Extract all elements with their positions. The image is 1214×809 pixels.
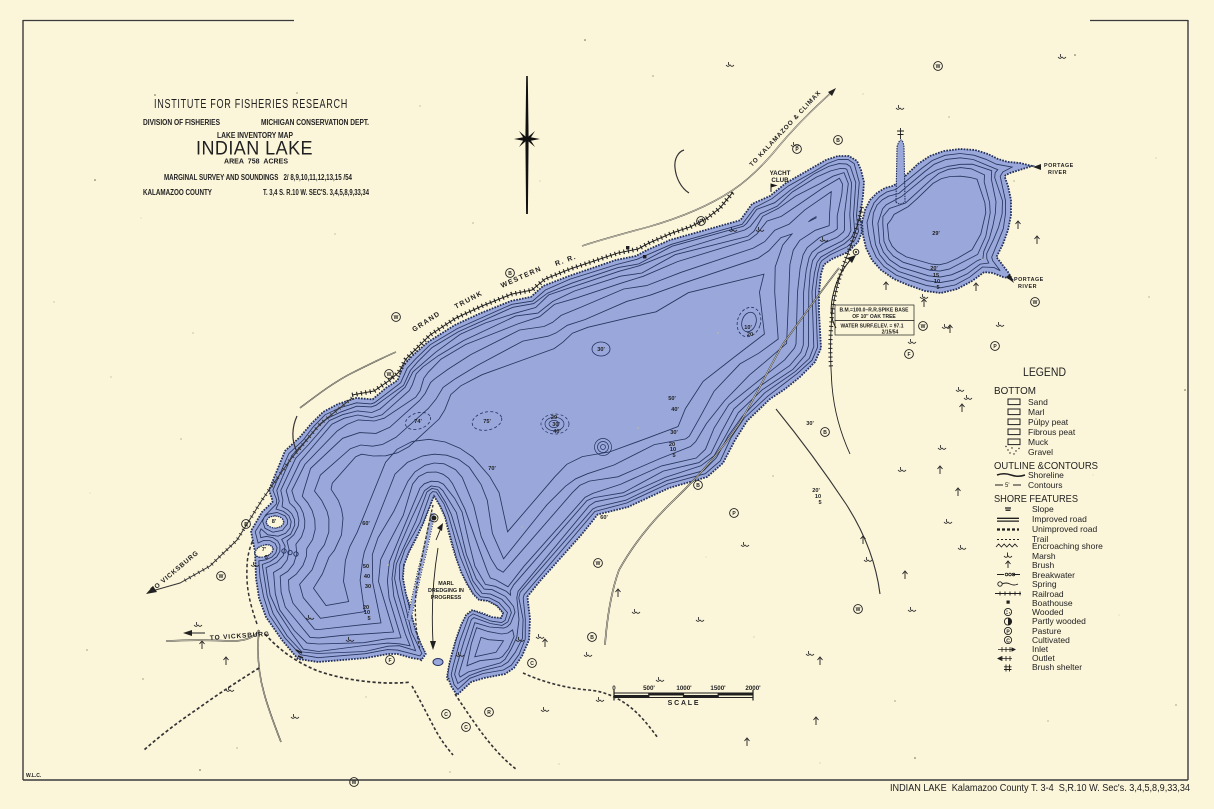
svg-text:Partly wooded: Partly wooded (1032, 616, 1086, 626)
svg-text:KALAMAZOO COUNTY: KALAMAZOO COUNTY (143, 188, 213, 197)
svg-text:8': 8' (272, 519, 277, 525)
svg-text:Shoreline: Shoreline (1028, 470, 1064, 480)
svg-text:DIVISION OF FISHERIES: DIVISION OF FISHERIES (143, 118, 221, 127)
svg-text:SCALE: SCALE (668, 700, 701, 707)
svg-text:C: C (1006, 638, 1010, 644)
svg-text:TO KALAMAZOO & CLIMAX: TO KALAMAZOO & CLIMAX (748, 89, 822, 168)
svg-text:W: W (352, 780, 357, 786)
svg-text:5: 5 (367, 616, 370, 622)
svg-text:Spring: Spring (1032, 579, 1057, 589)
svg-text:PORTAGE: PORTAGE (1014, 277, 1044, 283)
svg-text:CLUB: CLUB (771, 177, 789, 184)
svg-text:TRUNK: TRUNK (454, 290, 485, 311)
svg-text:5: 5 (936, 285, 939, 291)
svg-text:W: W (936, 64, 941, 70)
svg-text:W.L.C.: W.L.C. (26, 773, 42, 779)
svg-text:W: W (387, 372, 392, 378)
svg-text:50': 50' (668, 396, 676, 402)
svg-text:0: 0 (612, 685, 616, 692)
svg-text:Fibrous peat: Fibrous peat (1028, 427, 1076, 437)
svg-text:20: 20 (747, 332, 753, 338)
svg-text:AREA 758 ACRES: AREA 758 ACRES (224, 159, 288, 166)
svg-text:Brush: Brush (1032, 560, 1054, 570)
svg-text:40: 40 (364, 574, 370, 580)
svg-text:B: B (836, 138, 840, 144)
svg-text:Unimproved road: Unimproved road (1032, 524, 1097, 534)
svg-text:RIVER: RIVER (1048, 170, 1067, 176)
svg-text:60': 60' (362, 521, 370, 527)
svg-text:W: W (394, 315, 399, 321)
svg-text:7': 7' (262, 547, 267, 553)
svg-text:C: C (530, 661, 534, 667)
svg-text:BOTTOM: BOTTOM (994, 385, 1036, 397)
svg-text:T. 3,4 S. R.10 W. SEC'S. 3,4,5: T. 3,4 S. R.10 W. SEC'S. 3,4,5,8,9,33,34 (263, 188, 369, 197)
svg-text:29: 29 (551, 415, 557, 421)
svg-text:30': 30' (552, 422, 560, 428)
svg-text:W: W (856, 607, 861, 613)
svg-text:P: P (993, 344, 997, 350)
svg-text:Improved road: Improved road (1032, 514, 1087, 524)
svg-text:75': 75' (483, 419, 491, 425)
svg-text:B.M.=100.0–R.R.SPIKE BASE: B.M.=100.0–R.R.SPIKE BASE (839, 308, 909, 314)
svg-text:Muck: Muck (1028, 437, 1049, 447)
svg-text:Encroaching shore: Encroaching shore (1032, 541, 1103, 551)
svg-text:F: F (388, 658, 391, 664)
svg-text:INDIAN LAKE Kalamazoo County: INDIAN LAKE Kalamazoo County T. 3-4 S,R.… (890, 783, 1190, 794)
svg-text:MARGINAL SURVEY AND SOUNDINGS: MARGINAL SURVEY AND SOUNDINGS 2/ 8,9,10,… (164, 173, 352, 182)
svg-text:MARL: MARL (438, 581, 454, 587)
svg-text:Gravel: Gravel (1028, 447, 1053, 457)
svg-text:20': 20' (930, 266, 938, 272)
svg-text:Contours: Contours (1028, 480, 1063, 490)
svg-text:30': 30' (806, 421, 814, 427)
svg-text:B: B (244, 522, 248, 528)
svg-text:60': 60' (600, 515, 608, 521)
svg-text:OF 10″ OAK TREE: OF 10″ OAK TREE (852, 314, 896, 320)
svg-text:F: F (907, 352, 910, 358)
svg-text:1500': 1500' (710, 685, 726, 692)
svg-text:Slope: Slope (1032, 504, 1054, 514)
svg-text:Brush shelter: Brush shelter (1032, 662, 1082, 672)
svg-text:YACHT: YACHT (770, 170, 791, 177)
svg-text:5': 5' (1005, 483, 1009, 489)
svg-text:50: 50 (363, 564, 369, 570)
svg-text:W: W (596, 561, 601, 567)
svg-text:PROGRESS: PROGRESS (431, 595, 462, 601)
svg-text:PORTAGE: PORTAGE (1044, 163, 1074, 169)
svg-text:W: W (921, 324, 926, 330)
svg-text:5: 5 (818, 500, 821, 506)
svg-text:INDIAN LAKE: INDIAN LAKE (196, 138, 313, 160)
svg-text:5: 5 (672, 453, 675, 459)
svg-text:1000': 1000' (676, 685, 692, 692)
svg-text:30': 30' (670, 430, 678, 436)
svg-text:P: P (795, 147, 799, 153)
svg-text:40': 40' (553, 429, 561, 435)
svg-text:R: R (487, 710, 491, 716)
svg-text:W: W (1033, 300, 1038, 306)
svg-text:B: B (823, 430, 827, 436)
svg-text:C: C (444, 712, 448, 718)
svg-text:P: P (732, 511, 736, 517)
svg-text:Pulpy peat: Pulpy peat (1028, 417, 1069, 427)
svg-text:Sand: Sand (1028, 397, 1048, 407)
svg-text:RIVER: RIVER (1018, 284, 1037, 290)
svg-text:2000': 2000' (745, 685, 761, 692)
svg-text:W: W (219, 574, 224, 580)
svg-text:70': 70' (488, 466, 496, 472)
svg-text:C: C (464, 725, 468, 731)
svg-text:MICHIGAN CONSERVATION DEPT.: MICHIGAN CONSERVATION DEPT. (261, 118, 369, 127)
svg-text:29': 29' (932, 231, 940, 237)
svg-text:B: B (508, 271, 512, 277)
svg-text:74': 74' (414, 419, 422, 425)
svg-text:LEGEND: LEGEND (1023, 367, 1066, 379)
svg-text:5': 5' (265, 555, 270, 561)
svg-text:B: B (590, 635, 594, 641)
svg-text:40': 40' (671, 407, 679, 413)
svg-text:INSTITUTE FOR FISHERIES RESEAR: INSTITUTE FOR FISHERIES RESEARCH (154, 96, 348, 111)
svg-text:TO VICKSBURG: TO VICKSBURG (150, 550, 200, 594)
svg-text:30: 30 (365, 584, 371, 590)
svg-text:30': 30' (597, 347, 605, 353)
svg-text:B: B (696, 483, 700, 489)
svg-text:2/15/54: 2/15/54 (882, 330, 899, 336)
svg-text:500': 500' (643, 685, 655, 692)
svg-text:R. R.: R. R. (554, 254, 577, 268)
svg-text:Marl: Marl (1028, 407, 1045, 417)
svg-text:10': 10' (744, 325, 752, 331)
